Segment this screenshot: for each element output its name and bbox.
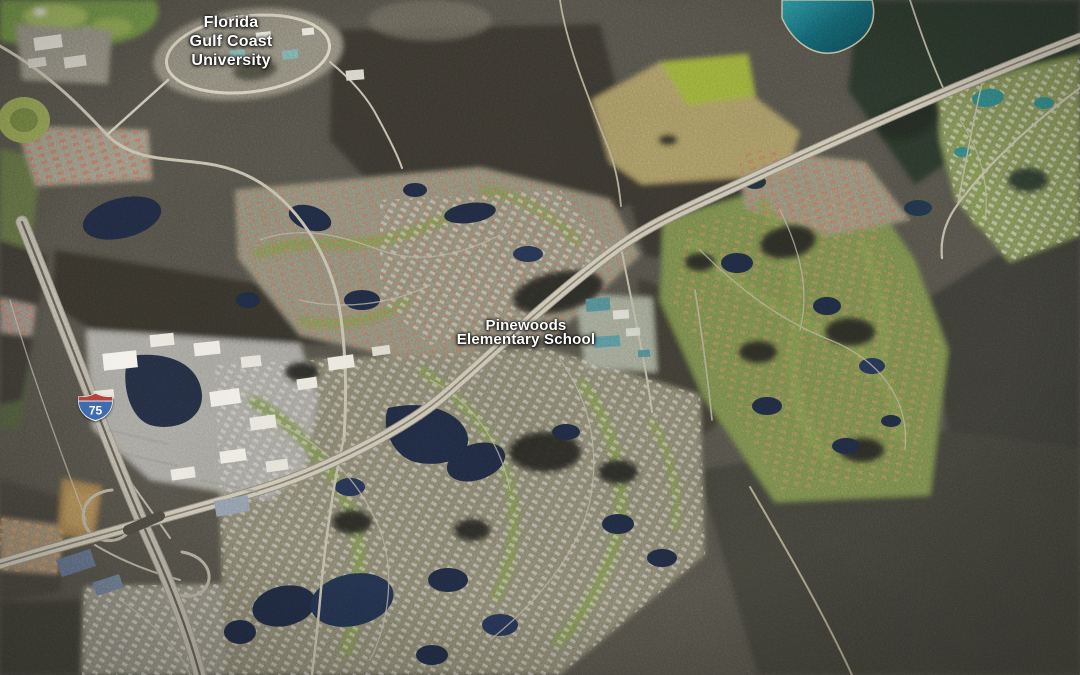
poi-label-school[interactable]: Pinewoods Elementary School [416, 319, 636, 347]
university-label-line3: University [131, 51, 331, 70]
poi-label-university[interactable]: Florida Gulf Coast University [131, 13, 331, 70]
school-label-line2: Elementary School [416, 333, 636, 347]
university-label-line2: Gulf Coast [131, 32, 331, 51]
university-label-line1: Florida [131, 13, 331, 32]
interstate-shield-graphic: 75 [77, 392, 114, 422]
shield-route-number: 75 [89, 404, 103, 418]
map-viewport[interactable]: Florida Gulf Coast University Pinewoods … [0, 0, 1080, 675]
interstate-75-shield-icon[interactable]: 75 [77, 392, 114, 422]
